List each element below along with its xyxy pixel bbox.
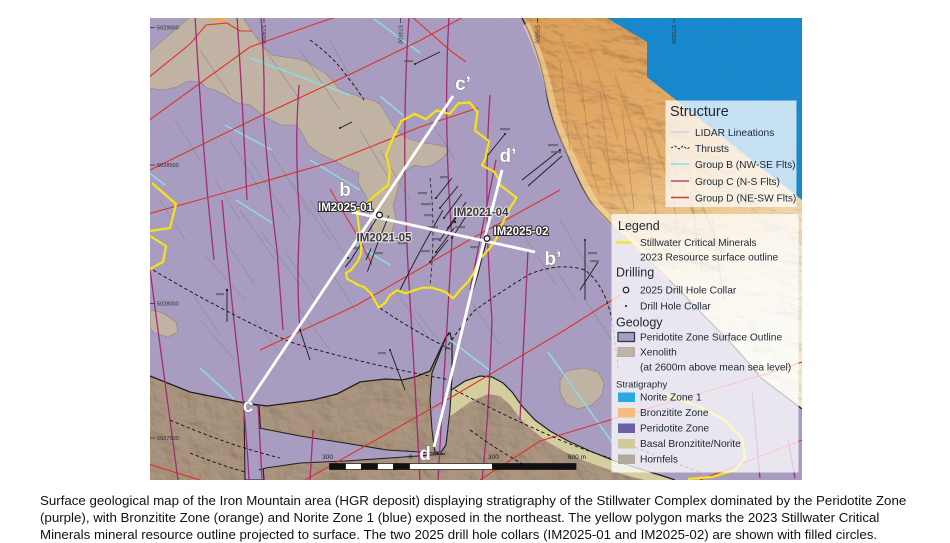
- svg-text:Peridotite Zone: Peridotite Zone: [640, 424, 709, 435]
- svg-text:5027500: 5027500: [157, 436, 179, 442]
- svg-text:LIDAR Lineations: LIDAR Lineations: [695, 128, 774, 139]
- svg-text:5028000: 5028000: [157, 302, 179, 308]
- svg-text:Stillwater Critical Minerals: Stillwater Critical Minerals: [640, 238, 757, 249]
- svg-text:5029000: 5029000: [157, 26, 179, 32]
- svg-text:600 m: 600 m: [568, 454, 586, 461]
- svg-text:Drilling: Drilling: [616, 266, 654, 280]
- svg-text:Thrusts: Thrusts: [695, 144, 729, 155]
- svg-text:Group C (N-S Flts): Group C (N-S Flts): [695, 177, 780, 188]
- svg-text:575500: 575500: [670, 25, 676, 44]
- svg-text:c’: c’: [455, 74, 471, 95]
- svg-text:5028500: 5028500: [157, 163, 179, 169]
- svg-text:Drill Hole Collar: Drill Hole Collar: [640, 302, 711, 313]
- svg-text:(at 2600m above mean sea level: (at 2600m above mean sea level): [640, 363, 791, 374]
- svg-text:574500: 574500: [397, 25, 403, 44]
- svg-text:Hornfels: Hornfels: [640, 455, 678, 466]
- svg-text:2025 Drill Hole Collar: 2025 Drill Hole Collar: [640, 286, 737, 297]
- svg-text:d: d: [419, 444, 431, 465]
- svg-text:Basal Bronzitite/Norite: Basal Bronzitite/Norite: [640, 439, 741, 450]
- svg-text:300: 300: [488, 454, 499, 461]
- svg-text:Group D (NE-SW Flts): Group D (NE-SW Flts): [695, 194, 796, 205]
- svg-text:Peridotite Zone Surface Outlin: Peridotite Zone Surface Outline: [640, 333, 782, 344]
- svg-text:Geology: Geology: [616, 316, 663, 330]
- svg-text:300: 300: [322, 454, 333, 461]
- svg-text:Xenolith: Xenolith: [640, 348, 677, 359]
- svg-text:c: c: [243, 396, 254, 417]
- svg-text:b’: b’: [545, 249, 562, 270]
- svg-text:Group B (NW-SE Flts): Group B (NW-SE Flts): [695, 160, 796, 171]
- svg-text:IM2025-01: IM2025-01: [318, 202, 374, 214]
- svg-text:IM2025-02: IM2025-02: [494, 226, 549, 238]
- svg-text:IM2021-04: IM2021-04: [454, 207, 510, 219]
- svg-text:2023 Resource surface outline: 2023 Resource surface outline: [640, 253, 779, 264]
- svg-text:IM2021-05: IM2021-05: [357, 233, 413, 245]
- svg-text:d’: d’: [500, 146, 517, 167]
- svg-text:0: 0: [409, 454, 413, 461]
- svg-text:Legend: Legend: [618, 219, 660, 233]
- svg-text:Structure: Structure: [670, 104, 729, 120]
- svg-text:Stratigraphy: Stratigraphy: [616, 380, 667, 391]
- svg-text:Norite Zone 1: Norite Zone 1: [640, 393, 702, 404]
- svg-text:Bronzitite Zone: Bronzitite Zone: [640, 408, 709, 419]
- svg-text:574000: 574000: [260, 25, 266, 44]
- svg-text:575000: 575000: [534, 25, 540, 44]
- svg-text:b: b: [339, 180, 351, 201]
